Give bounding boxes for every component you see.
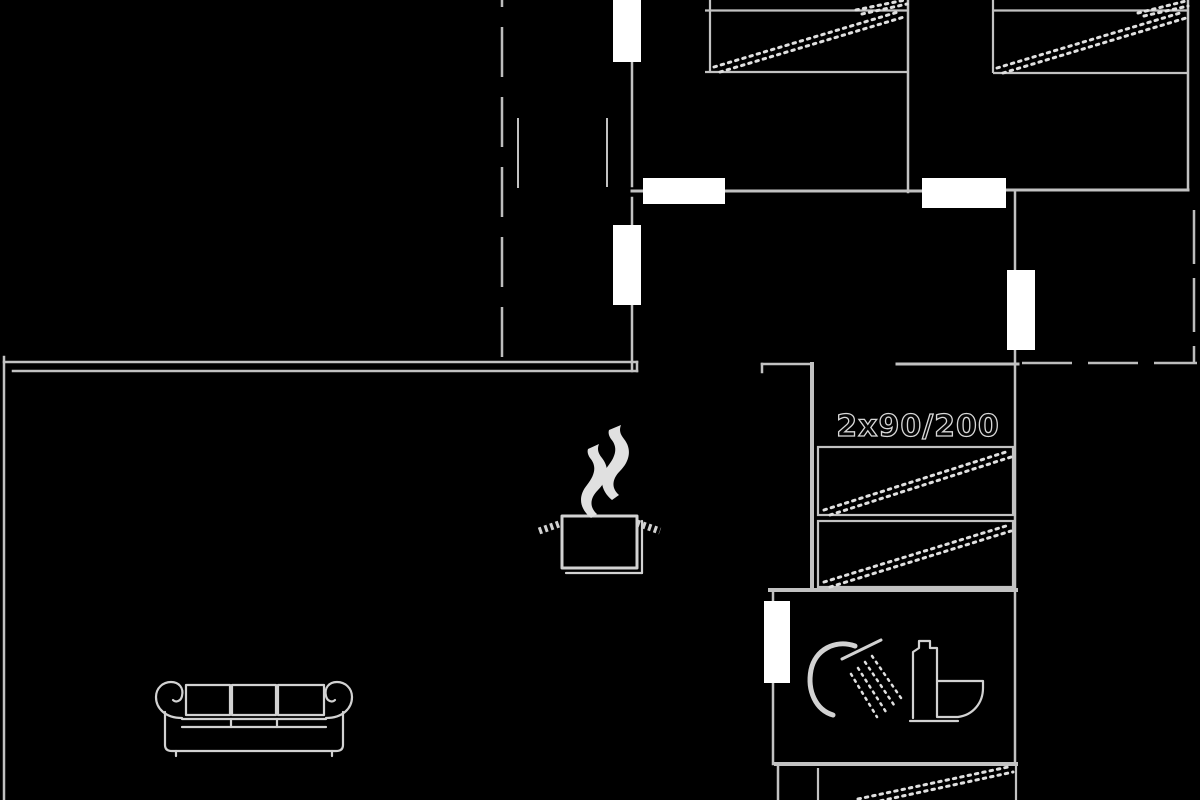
window-marker [613,0,641,62]
door-marker [764,601,790,683]
door-marker [1007,270,1035,350]
window-marker [613,225,641,305]
door-marker [922,178,1006,208]
bed-size-label: 2x90/200 [836,409,1000,444]
background [0,0,1200,800]
door-marker [643,178,725,204]
floor-plan-page: 2x90/200 [0,0,1200,800]
floor-plan: 2x90/200 [0,0,1200,800]
